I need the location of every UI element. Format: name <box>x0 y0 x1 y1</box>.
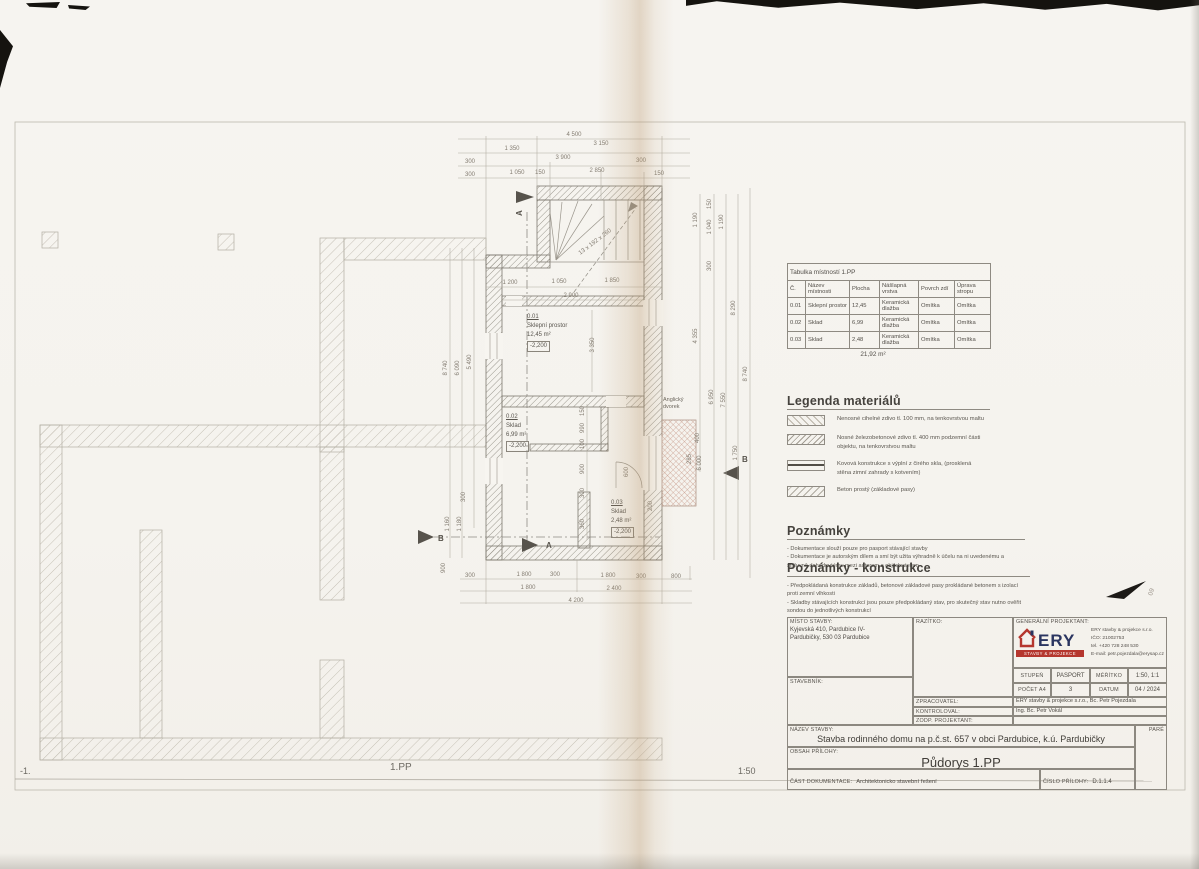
room-table-header: Č. <box>788 281 806 298</box>
stage-value-cell: PASPORT <box>1051 668 1090 683</box>
room-level: -2,200 <box>506 441 529 452</box>
column-symbol <box>42 232 58 248</box>
legend-items: Nenosné cihelné zdivo tl. 100 mm, na ten… <box>787 415 997 497</box>
stamp-cell: RAZÍTKO: <box>913 617 1013 697</box>
company-ico: IČO: 21002753 <box>1091 635 1164 643</box>
note-item: - Dokumentace slouží pouze pro pasport s… <box>787 545 1022 553</box>
dimension-label: 1 200 <box>502 280 518 286</box>
sheet-number-cell: ČÍSLO PŘÍLOHY:D.1.1.4 <box>1040 769 1135 790</box>
dimension-label: 360 <box>580 518 586 529</box>
section-letter: A <box>515 210 524 216</box>
date-value-cell: 04 / 2024 <box>1128 683 1167 697</box>
dimension-label: 2 900 <box>563 293 579 299</box>
client-label: STAVEBNÍK: <box>788 678 912 686</box>
mark-label: 09 <box>1147 587 1156 596</box>
walls-light <box>40 232 662 760</box>
notes-title: Poznámky <box>787 524 1027 538</box>
section-letter: A <box>546 541 552 550</box>
stair-formula: 13 x 192 x 260 <box>578 228 614 257</box>
dimension-label: 8 740 <box>443 360 449 376</box>
room-area: 2,48 m² <box>611 517 661 526</box>
designer-label: GENERÁLNÍ PROJEKTANT: <box>1014 618 1166 626</box>
room-name: Sklad <box>506 422 566 431</box>
title-block: MÍSTO STAVBY: Kyjevská 410, Pardubice IV… <box>787 617 1167 790</box>
legend-swatch-sw-brick <box>787 415 825 426</box>
table-cell: 12,45 <box>850 298 880 315</box>
dimension-label: 300 <box>550 572 561 578</box>
dimension-label: 1 750 <box>733 445 739 461</box>
room-table-header: Název místnosti <box>806 281 850 298</box>
table-cell: 2,48 <box>850 332 880 349</box>
room-table-header: Nášlapná vrstva <box>880 281 919 298</box>
section-marker-b-left <box>418 530 434 544</box>
dimension-label: 100 <box>580 438 586 449</box>
ery-house-icon <box>1016 627 1038 649</box>
checker-value-cell: Ing. Bc. Petr Vokál <box>1013 707 1167 716</box>
legend-text: Nosné železobetonové zdivo tl. 400 mm po… <box>837 434 987 452</box>
ery-logo-subtitle: STAVBY & PROJEKCE <box>1016 650 1084 657</box>
dimension-label: 4 500 <box>566 132 582 138</box>
sheets-value-cell: 3 <box>1051 683 1090 697</box>
table-cell: Omítka <box>919 332 955 349</box>
room-area: 6,99 m² <box>506 431 566 440</box>
scan-shadow-bottom <box>0 853 1199 869</box>
site-label: MÍSTO STAVBY: <box>788 618 912 626</box>
dimension-label: 300 <box>465 159 476 165</box>
dimension-label: 8 290 <box>731 300 737 316</box>
dimension-label: 3 350 <box>590 337 596 353</box>
table-cell: 0.02 <box>788 315 806 332</box>
room-label-003: 0.03 Sklad 2,48 m² -2,200 <box>611 499 661 538</box>
stamp-label: RAZÍTKO: <box>914 618 1012 626</box>
dimension-label: 7 550 <box>721 392 727 408</box>
client-cell: STAVEBNÍK: <box>787 677 913 725</box>
dimension-label: 6 090 <box>455 360 461 376</box>
table-cell: Omítka <box>955 315 991 332</box>
dimension-label: 1 050 <box>551 279 567 285</box>
dimension-label: 400 <box>695 432 701 443</box>
legend-swatch-sw-metal <box>787 460 825 471</box>
designer-cell: GENERÁLNÍ PROJEKTANT: ERY STAVBY & PROJE… <box>1013 617 1167 668</box>
doc-part-cell: ČÁST DOKUMENTACE:Architektonicko stavebn… <box>787 769 1040 790</box>
table-cell: 0.03 <box>788 332 806 349</box>
dimension-label: 300 <box>461 491 467 502</box>
date-label-cell: DATUM <box>1090 683 1128 697</box>
dimension-label: 150 <box>580 405 586 416</box>
pen-arrow-mark: 09 <box>1106 581 1156 599</box>
section-marker-b-right <box>723 466 739 480</box>
room-label-001: 0.01 Sklepní prostor 12,45 m² -2,200 <box>527 313 587 352</box>
room-name: Sklad <box>611 508 661 517</box>
dimension-label: 3 150 <box>593 141 609 147</box>
company-tel: tel. +420 728 248 530 <box>1091 643 1164 651</box>
dimension-label: 1 180 <box>457 516 463 532</box>
section-letter: B <box>438 534 444 543</box>
dimension-label: 150 <box>654 171 665 177</box>
room-id: 0.01 <box>527 313 587 322</box>
dimension-label: 285 <box>687 453 693 464</box>
construction-notes-items: - Předpokládaná konstrukce základů, beto… <box>787 582 1032 616</box>
dimension-label: 300 <box>636 574 647 580</box>
table-cell: Keramická dlažba <box>880 298 919 315</box>
dimension-label: 300 <box>465 172 476 178</box>
dimension-label: 1 040 <box>707 219 713 235</box>
dimension-label: 1 350 <box>504 146 520 152</box>
room-id: 0.02 <box>506 413 566 422</box>
dimension-label: 800 <box>671 574 682 580</box>
dimension-label: 300 <box>465 573 476 579</box>
dimension-label: 1 160 <box>445 516 451 532</box>
author-value-cell: ERY stavby & projekce s.r.o., Bc. Petr P… <box>1013 697 1167 707</box>
dimension-label: 900 <box>580 463 586 474</box>
room-label-002: 0.02 Sklad 6,99 m² -2,200 <box>506 413 566 452</box>
dimension-label: 1 800 <box>520 585 536 591</box>
room-table-total: 21,92 m² <box>849 351 897 358</box>
dimension-label: 1 800 <box>600 573 616 579</box>
legend-text: Beton prostý (základové pasy) <box>837 486 987 495</box>
room-table-header: Povrch zdí <box>919 281 955 298</box>
checker-label-cell: KONTROLOVAL: <box>913 707 1013 716</box>
dimension-label: 2 400 <box>606 586 622 592</box>
section-marker-a-top <box>516 191 534 203</box>
dimension-label: 1 800 <box>516 572 532 578</box>
column-symbol <box>218 234 234 250</box>
table-cell: Omítka <box>955 332 991 349</box>
room-level: -2,200 <box>527 341 550 352</box>
legend-title: Legenda materiálů <box>787 394 997 408</box>
dimension-label: 8 740 <box>743 366 749 382</box>
legend-text: Kovová konstrukce s výplní z čirého skla… <box>837 460 987 478</box>
dimension-label: 150 <box>535 170 546 176</box>
dimension-label: 300 <box>636 158 647 164</box>
scanned-drawing-sheet: 13 x 192 x 260 A A B B <box>0 0 1199 869</box>
author-label-cell: ZPRACOVATEL: <box>913 697 1013 707</box>
table-cell: Omítka <box>919 298 955 315</box>
dimension-label: 1 190 <box>693 212 699 228</box>
dimension-label: 300 <box>580 487 586 498</box>
table-cell: Keramická dlažba <box>880 315 919 332</box>
note-item: - Skladby stávajících konstrukcí jsou po… <box>787 599 1022 616</box>
room-area: 12,45 m² <box>527 331 587 340</box>
legend-swatch-sw-diag <box>787 434 825 445</box>
dimension-label: 1 850 <box>604 278 620 284</box>
legend-item: Nenosné cihelné zdivo tl. 100 mm, na ten… <box>787 415 997 426</box>
footer-number: -1. <box>20 766 31 776</box>
resp-label-cell: ZODP. PROJEKTANT: <box>913 716 1013 725</box>
courtyard-label: Anglický dvorek <box>663 397 703 411</box>
table-row: 0.03Sklad2,48Keramická dlažbaOmítkaOmítk… <box>788 332 991 349</box>
dimension-label: 900 <box>441 562 447 573</box>
dimension-label: 150 <box>707 198 713 209</box>
table-cell: Omítka <box>919 315 955 332</box>
room-table-header: Úprava stropu <box>955 281 991 298</box>
material-legend: Legenda materiálů Nenosné cihelné zdivo … <box>787 394 997 505</box>
table-cell: Sklad <box>806 315 850 332</box>
table-cell: 0.01 <box>788 298 806 315</box>
sheet-content-cell: OBSAH PŘÍLOHY: Půdorys 1.PP <box>787 747 1135 769</box>
pare-cell: PARÉ <box>1135 725 1167 790</box>
scan-shadow-right <box>1190 0 1199 869</box>
scale-label-cell: MĚŘÍTKO <box>1090 668 1128 683</box>
resp-value-cell <box>1013 716 1167 725</box>
project-name-cell: NÁZEV STAVBY: Stavba rodinného domu na p… <box>787 725 1135 747</box>
table-cell: Sklepní prostor <box>806 298 850 315</box>
table-row: 0.02Sklad6,99Keramická dlažbaOmítkaOmítk… <box>788 315 991 332</box>
table-cell: Keramická dlažba <box>880 332 919 349</box>
dimension-label: 600 <box>624 466 630 477</box>
legend-item: Kovová konstrukce s výplní z čirého skla… <box>787 460 997 478</box>
room-id: 0.03 <box>611 499 661 508</box>
note-item: - Předpokládaná konstrukce základů, beto… <box>787 582 1022 599</box>
sheet-content: Půdorys 1.PP <box>788 755 1134 770</box>
room-name: Sklepní prostor <box>527 322 587 331</box>
stage-label-cell: STUPEŇ <box>1013 668 1051 683</box>
ery-logo-text: ERY <box>1038 632 1075 649</box>
ery-logo: ERY STAVBY & PROJEKCE <box>1016 627 1086 658</box>
table-row: 0.01Sklepní prostor12,45Keramická dlažba… <box>788 298 991 315</box>
dimension-label: 300 <box>707 260 713 271</box>
room-table-header: Plocha <box>850 281 880 298</box>
room-table: Tabulka místností 1.PP Č.Název místnosti… <box>787 263 990 358</box>
dimension-label: 4 200 <box>568 598 584 604</box>
company-name: ERY stavby & projekce s.r.o. <box>1091 627 1164 635</box>
dimension-label: 5 490 <box>467 354 473 370</box>
table-cell: 6,99 <box>850 315 880 332</box>
table-cell: Omítka <box>955 298 991 315</box>
table-cell: Sklad <box>806 332 850 349</box>
footer-scale: 1:50 <box>738 766 756 776</box>
construction-notes-title: Poznámky - konstrukce <box>787 561 1032 575</box>
dimension-label: 1 190 <box>719 214 725 230</box>
dimension-label: 3 900 <box>555 155 571 161</box>
dimension-label: 2 850 <box>589 168 605 174</box>
stair-arrow <box>628 202 638 212</box>
project-name: Stavba rodinného domu na p.č.st. 657 v o… <box>788 734 1134 744</box>
room-level: -2,200 <box>611 527 634 538</box>
dimension-label: 6 000 <box>697 455 703 471</box>
room-table-title: Tabulka místností 1.PP <box>788 264 991 281</box>
dimension-label: 990 <box>580 422 586 433</box>
legend-underline <box>787 409 990 410</box>
section-letter: B <box>742 455 748 464</box>
dimension-label: 4 355 <box>693 328 699 344</box>
sheets-label-cell: POČET A4 <box>1013 683 1051 697</box>
dimension-label: 6 950 <box>709 389 715 405</box>
legend-text: Nenosné cihelné zdivo tl. 100 mm, na ten… <box>837 415 987 424</box>
legend-item: Nosné železobetonové zdivo tl. 400 mm po… <box>787 434 997 452</box>
construction-notes-block: Poznámky - konstrukce - Předpokládaná ko… <box>787 561 1032 616</box>
legend-item: Beton prostý (základové pasy) <box>787 486 997 497</box>
company-email: E-mail: petr.pojezdala@erysap.cz <box>1091 651 1164 659</box>
dimension-label: 1 050 <box>509 170 525 176</box>
legend-swatch-sw-concrete <box>787 486 825 497</box>
footer-view-label: 1.PP <box>390 762 412 773</box>
scale-value-cell: 1:50, 1:1 <box>1128 668 1167 683</box>
site-cell: MÍSTO STAVBY: Kyjevská 410, Pardubice IV… <box>787 617 913 677</box>
